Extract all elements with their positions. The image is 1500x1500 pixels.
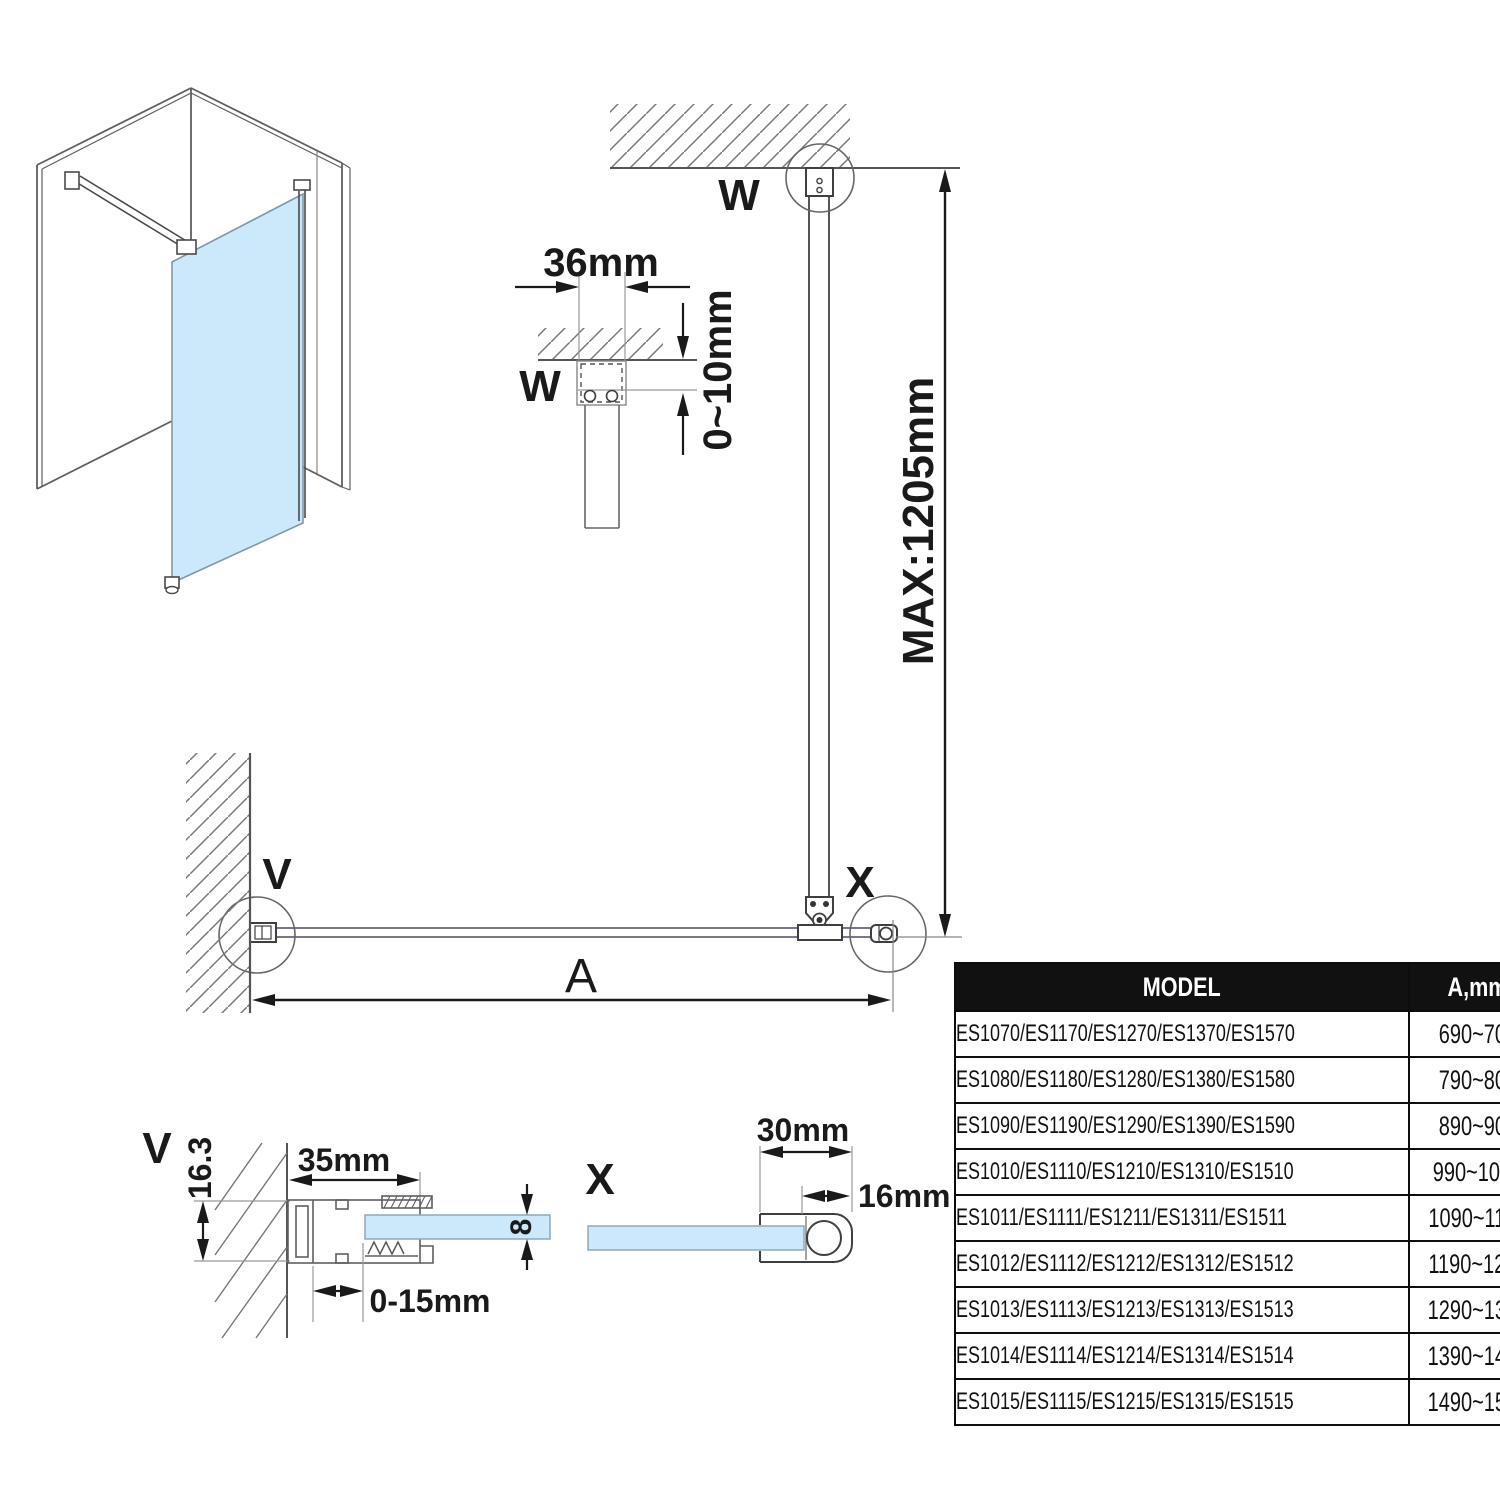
label-x-main: X <box>845 858 874 907</box>
dim-max-height: MAX:1205mm <box>894 169 962 937</box>
dim-profile-depth-text: 16.3 <box>182 1137 218 1199</box>
model-cell: ES1070/ES1170/ES1270/ES1370/ES1570 <box>955 1011 1409 1057</box>
table-row: ES1015/ES1115/ES1215/ES1315/ES1515 1490~… <box>955 1379 1500 1425</box>
table-row: ES1070/ES1170/ES1270/ES1370/ES1570 690~7… <box>955 1011 1500 1057</box>
model-cell: ES1012/ES1112/ES1212/ES1312/ES1512 <box>955 1241 1409 1287</box>
table-row: ES1090/ES1190/ES1290/ES1390/ES1590 890~9… <box>955 1103 1500 1149</box>
label-v-main: V <box>262 850 292 899</box>
a-cell: 1090~1105 <box>1409 1195 1500 1241</box>
table-row: ES1012/ES1112/ES1212/ES1312/ES1512 1190~… <box>955 1241 1500 1287</box>
wall-profile-top-cap <box>294 180 310 190</box>
label-v-detail: V <box>142 1124 172 1173</box>
ceiling-bracket <box>806 168 833 196</box>
a-cell: 790~805 <box>1409 1057 1500 1103</box>
bar-glass-clamp <box>798 925 842 940</box>
detail-v: V 16.3 35mm <box>142 1124 550 1338</box>
glass-section-x <box>588 1226 804 1250</box>
dim-bracket-width-text: 36mm <box>543 241 659 285</box>
table-header-row: MODEL A,mm <box>955 963 1500 1011</box>
bar-hinge <box>798 897 842 940</box>
support-bar-wall-mount <box>65 172 79 189</box>
column-header-a: A,mm <box>1409 963 1500 1011</box>
model-cell: ES1013/ES1113/ES1213/ES1313/ES1513 <box>955 1287 1409 1333</box>
support-bar-glass-clamp <box>177 240 196 254</box>
a-cell: 1190~1205 <box>1409 1241 1500 1287</box>
plan-wall <box>186 753 250 1013</box>
label-w-main: W <box>718 171 760 220</box>
a-cell: 890~905 <box>1409 1103 1500 1149</box>
label-x-detail: X <box>585 1155 614 1204</box>
table-row: ES1014/ES1114/ES1214/ES1314/ES1514 1390~… <box>955 1333 1500 1379</box>
model-cell: ES1014/ES1114/ES1214/ES1314/ES1514 <box>955 1333 1409 1379</box>
a-cell: 1390~1405 <box>1409 1333 1500 1379</box>
a-cell: 690~705 <box>1409 1011 1500 1057</box>
model-cell: ES1090/ES1190/ES1290/ES1390/ES1590 <box>955 1103 1409 1149</box>
glass-plan-edges <box>272 928 872 937</box>
a-cell: 1490~1505 <box>1409 1379 1500 1425</box>
model-cell: ES1010/ES1110/ES1210/ES1310/ES1510 <box>955 1149 1409 1195</box>
table-row: ES1080/ES1180/ES1280/ES1380/ES1580 790~8… <box>955 1057 1500 1103</box>
table-row: ES1011/ES1111/ES1211/ES1311/ES1511 1090~… <box>955 1195 1500 1241</box>
a-cell: 1290~1305 <box>1409 1287 1500 1333</box>
ceiling-brace-bar <box>809 196 829 897</box>
model-spec-table: MODEL A,mm ES1070/ES1170/ES1270/ES1370/E… <box>954 962 1500 1426</box>
elevation-view: W V X <box>219 104 960 973</box>
wall-profile-plan <box>250 923 276 942</box>
column-header-model: MODEL <box>955 963 1409 1011</box>
model-cell: ES1015/ES1115/ES1215/ES1315/ES1515 <box>955 1379 1409 1425</box>
dim-profile-width-text: 35mm <box>298 1142 391 1178</box>
label-w-detail: W <box>519 362 561 411</box>
model-cell: ES1011/ES1111/ES1211/ES1311/ES1511 <box>955 1195 1409 1241</box>
dim-max-height-text: MAX:1205mm <box>894 377 943 666</box>
dim-width-a: A <box>252 920 893 1012</box>
detail-w: 36mm 0~10mm W <box>515 241 740 528</box>
detail-x: X 30mm 16mm <box>585 1112 950 1262</box>
dim-endcap-width-text: 30mm <box>757 1112 850 1148</box>
support-bar <box>65 172 196 254</box>
dim-glass-thickness-text: 8 <box>505 1219 538 1236</box>
technical-drawing-page: W V X MAX:1205mm A 36mm <box>0 0 1500 1500</box>
dim-ceiling-gap-text: 0~10mm <box>696 289 740 450</box>
ceiling-hatch <box>610 104 850 168</box>
dim-endcap-tube-text: 16mm <box>858 1178 951 1214</box>
a-cell: 990~1005 <box>1409 1149 1500 1195</box>
table-row: ES1010/ES1110/ES1210/ES1310/ES1510 990~1… <box>955 1149 1500 1195</box>
isometric-view <box>37 88 350 594</box>
table-row: ES1013/ES1113/ES1213/ES1313/ES1513 1290~… <box>955 1287 1500 1333</box>
model-cell: ES1080/ES1180/ES1280/ES1380/ES1580 <box>955 1057 1409 1103</box>
dim-width-a-text: A <box>565 950 597 1003</box>
dim-adjust-text: 0-15mm <box>370 1283 491 1319</box>
